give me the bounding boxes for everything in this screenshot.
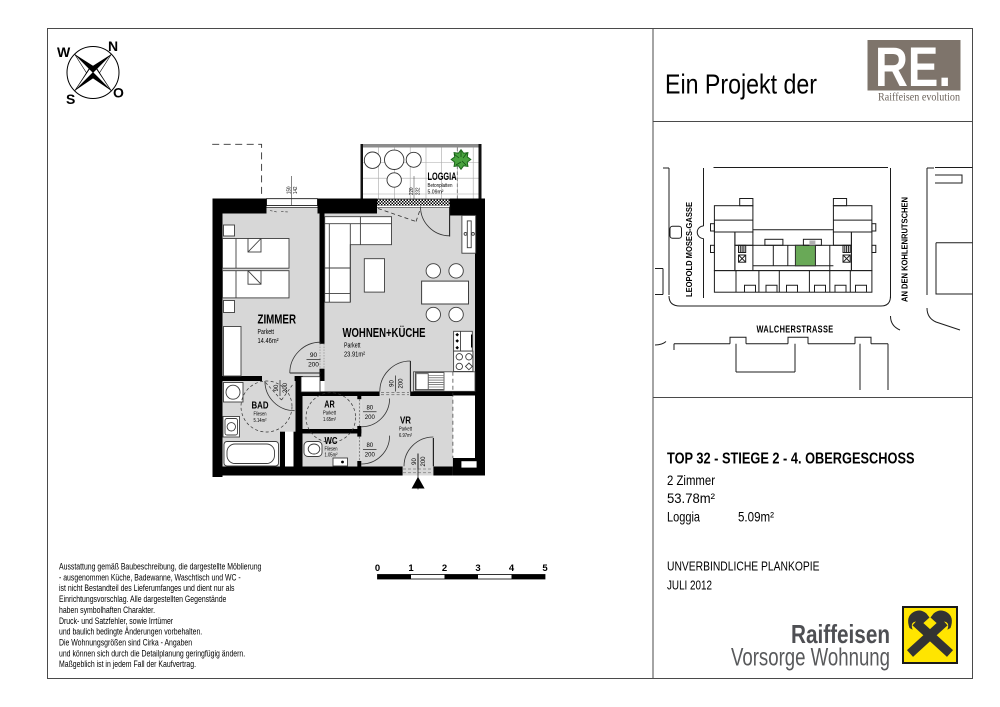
svg-text:Parkett: Parkett [399,427,412,433]
svg-text:O: O [113,85,124,101]
svg-text:Ein Projekt der: Ein Projekt der [665,69,817,100]
svg-text:90: 90 [390,380,396,387]
svg-text:0: 0 [375,563,380,574]
svg-text:ist nicht Bestandteil des Lief: ist nicht Bestandteil des Lieferumfanges… [59,583,235,593]
svg-text:23.91m²: 23.91m² [344,352,366,359]
svg-text:UNVERBINDLICHE PLANKOPIE: UNVERBINDLICHE PLANKOPIE [667,560,820,574]
svg-text:90: 90 [310,352,318,359]
svg-text:S: S [66,91,75,107]
svg-text:200: 200 [308,362,319,369]
svg-text:W: W [57,44,71,60]
svg-text:WC: WC [325,435,338,447]
svg-text:220: 220 [409,188,415,196]
svg-text:53.78m²: 53.78m² [667,490,715,506]
svg-text:AN DEN KOHLENRUTSCHEN: AN DEN KOHLENRUTSCHEN [900,197,910,302]
svg-text:RE.: RE. [875,35,951,98]
svg-text:Loggia: Loggia [667,509,700,525]
svg-text:2: 2 [442,563,447,574]
svg-text:90: 90 [412,458,418,465]
svg-text:Druck- und Satzfehler, sowie I: Druck- und Satzfehler, sowie Irrtümer [59,616,173,626]
svg-text:2 Zimmer: 2 Zimmer [667,472,715,488]
svg-text:3: 3 [475,563,480,574]
svg-text:N: N [108,38,118,54]
svg-text:80: 80 [366,406,373,412]
svg-text:- ausgenommen Küche, Badewanne: - ausgenommen Küche, Badewanne, Waschtis… [59,572,241,582]
svg-text:AR: AR [324,399,335,411]
svg-text:5.14m²: 5.14m² [254,418,267,424]
svg-text:5.09m²: 5.09m² [428,190,444,196]
svg-text:200: 200 [421,456,427,467]
svg-text:Maßgeblich ist in jedem Fall d: Maßgeblich ist in jedem Fall der Kaufver… [59,659,196,669]
svg-text:Parkett: Parkett [323,411,336,417]
svg-text:5: 5 [542,563,548,574]
svg-text:1: 1 [408,563,414,574]
svg-text:Fliesen: Fliesen [254,412,267,418]
svg-text:14.46m²: 14.46m² [258,338,280,345]
svg-text:5.09m²: 5.09m² [738,509,774,525]
svg-text:142: 142 [293,187,299,195]
svg-text:Einrichtungsvorschlag. Alle da: Einrichtungsvorschlag. Alle dargestellte… [59,594,226,604]
svg-text:232: 232 [416,188,422,196]
svg-text:JULI 2012: JULI 2012 [667,579,712,593]
svg-text:Vorsorge Wohnung: Vorsorge Wohnung [731,644,890,672]
svg-text:4: 4 [509,563,515,574]
svg-text:LOGGIA: LOGGIA [428,171,457,183]
svg-text:VR: VR [400,415,411,427]
svg-text:Parkett: Parkett [258,329,275,336]
svg-text:150: 150 [286,187,292,195]
svg-text:1.65m²: 1.65m² [323,417,336,423]
svg-text:WALCHERSTRASSE: WALCHERSTRASSE [757,324,834,336]
svg-text:ZIMMER: ZIMMER [258,312,297,327]
svg-text:Die Wohnungsgrößen sind Cirka: Die Wohnungsgrößen sind Cirka - Angaben [59,638,192,648]
svg-text:90: 90 [274,384,280,391]
svg-text:und baulich bedingte Änderunge: und baulich bedingte Änderungen vorbehal… [59,627,202,637]
svg-text:haben symbolhaften Charakter.: haben symbolhaften Charakter. [59,605,155,615]
svg-text:200: 200 [399,378,405,389]
svg-text:Parkett: Parkett [344,343,361,350]
svg-text:BAD: BAD [252,400,269,412]
svg-text:1.05m²: 1.05m² [325,453,338,459]
svg-text:200: 200 [283,382,289,393]
svg-text:TOP 32 - STIEGE 2 - 4. OBERGES: TOP 32 - STIEGE 2 - 4. OBERGESCHOSS [667,451,915,468]
svg-text:LEOPOLD MOSES-GASSE: LEOPOLD MOSES-GASSE [684,202,694,297]
svg-text:6.97m²: 6.97m² [399,433,412,439]
svg-text:Betonplatten: Betonplatten [428,183,453,189]
svg-text:und können sich durch die Deta: und können sich durch die Detailplanung … [59,648,245,658]
svg-text:WOHNEN+KÜCHE: WOHNEN+KÜCHE [343,325,426,340]
svg-text:Ausstattung gemäß Baubeschreib: Ausstattung gemäß Baubeschreibung, die d… [59,562,261,572]
svg-text:Raiffeisen evolution: Raiffeisen evolution [878,92,960,104]
svg-text:200: 200 [365,415,376,421]
svg-text:200: 200 [365,452,376,458]
svg-text:80: 80 [366,443,373,449]
